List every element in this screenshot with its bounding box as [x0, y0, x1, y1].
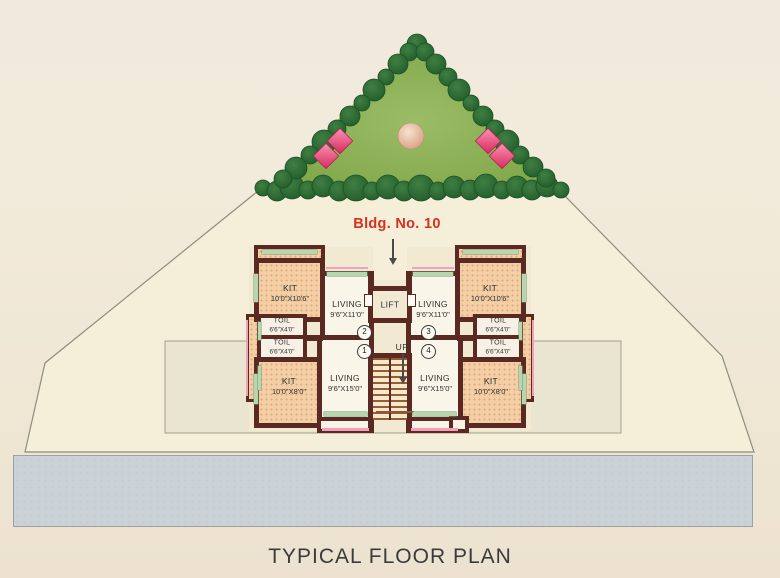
lift-door-right [407, 294, 416, 307]
entrance-pillar-left [368, 275, 374, 288]
label-living-lower-right: LIVING 9'6"X15'0" [418, 373, 452, 393]
window-sill [519, 322, 522, 340]
plinth-line-center [376, 411, 414, 413]
label-living-upper-right: LIVING 9'6"X11'0" [416, 299, 450, 319]
label-living-upper-left: LIVING 9'6"X11'0" [330, 299, 364, 319]
window-sill [258, 322, 261, 340]
window-sill [262, 250, 317, 254]
lift-door-left [364, 294, 373, 307]
window-sill [519, 366, 522, 390]
building-pointer-arrow [392, 239, 394, 259]
page-title: TYPICAL FLOOR PLAN [268, 545, 512, 569]
window [326, 267, 368, 269]
label-kitchen-upper-right: KIT 10'0"X10'6" [471, 283, 509, 303]
label-kitchen-lower-right: KIT 10'0"X8'0" [474, 376, 508, 396]
flat-divider-wall-left [303, 335, 323, 341]
garden-fountain [398, 123, 424, 149]
window-sill [522, 374, 526, 404]
window-sill [254, 274, 258, 302]
up-arrowhead [399, 377, 407, 384]
window [412, 267, 454, 269]
flat-number-2: 2 [357, 325, 372, 340]
window-sill [413, 272, 453, 276]
label-living-lower-left: LIVING 9'6"X15'0" [328, 373, 362, 393]
label-toilet-left-2: TOIL 6'6"X4'0" [269, 340, 294, 357]
window-sill [463, 250, 518, 254]
building-number-label: Bldg. No. 10 [353, 216, 440, 232]
road-strip [13, 455, 753, 527]
window-sill [324, 412, 367, 416]
label-lift: LIFT [381, 300, 400, 311]
duct-window [532, 320, 534, 396]
label-kitchen-lower-left: KIT 10'0"X8'0" [272, 376, 306, 396]
flat-divider-wall-right [457, 335, 477, 341]
balcony-railing [411, 428, 458, 431]
label-toilet-left-1: TOIL 6'6"X4'0" [269, 318, 294, 335]
garden-grass [272, 40, 558, 186]
up-arrow [402, 354, 404, 378]
label-up: UP [396, 342, 409, 352]
flat-number-1: 1 [357, 344, 372, 359]
label-toilet-right-1: TOIL 6'6"X4'0" [485, 318, 510, 335]
flat-number-3: 3 [421, 325, 436, 340]
building-pointer-arrowhead [389, 258, 397, 265]
label-kitchen-upper-left: KIT 10'0"X10'6" [271, 283, 309, 303]
label-toilet-right-2: TOIL 6'6"X4'0" [485, 340, 510, 357]
flat-number-4: 4 [421, 344, 436, 359]
window-sill [258, 366, 261, 390]
window-sill [327, 272, 367, 276]
duct-window [246, 320, 248, 396]
window-sill [413, 412, 456, 416]
entrance-pillar-right [406, 275, 412, 288]
balcony-railing [322, 428, 369, 431]
entrance-pillar-br [406, 420, 412, 433]
scanned-floor-plan-page: { "annotation": { "building_label": "Bld… [0, 0, 780, 578]
entrance-pillar-bl [368, 420, 374, 433]
window-sill [522, 274, 526, 302]
